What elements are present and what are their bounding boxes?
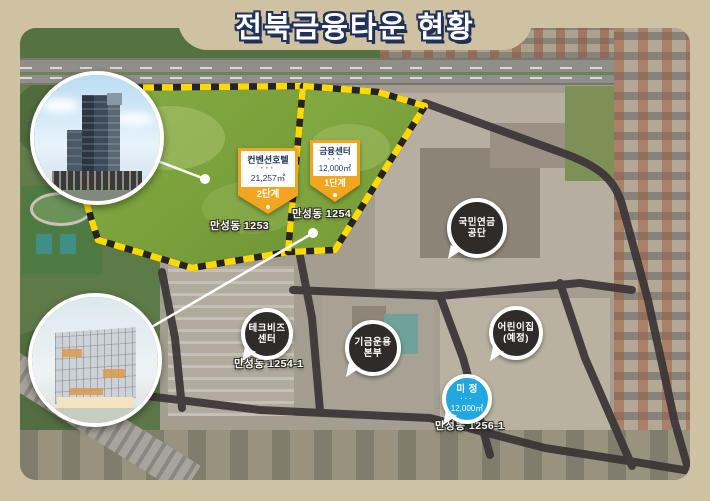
facade-accent bbox=[70, 388, 103, 396]
bubble-area-value: 12,000㎡ bbox=[451, 404, 483, 414]
bubble-line: 본부 bbox=[364, 348, 382, 359]
badge-convention-hotel: 컨벤션호텔 ··· 21,257㎡ 2단계 bbox=[238, 148, 298, 214]
bubble-label: 테크비즈 센터 bbox=[249, 323, 286, 346]
badge-area-value: 12,000㎡ bbox=[310, 163, 360, 174]
hotel-podium bbox=[52, 171, 143, 191]
bubble-fund-hq: 기금운용 본부 bbox=[345, 320, 401, 376]
bubble-undecided: 미 정 ··· 12,000㎡ bbox=[442, 374, 492, 424]
bubble-line: 어린이집 bbox=[498, 322, 535, 333]
badge-area-value: 21,257㎡ bbox=[238, 172, 298, 184]
page-title: 전북금융타운 현황 bbox=[235, 4, 475, 46]
infographic-board: 만성동 1253 만성동 1254 만성동 1254-1 만성동 1256-1 … bbox=[0, 0, 710, 501]
bubble-label: 국민연금 공단 bbox=[459, 217, 496, 240]
badge-phase: 2단계 bbox=[238, 186, 298, 200]
badge-tip-dot bbox=[333, 193, 337, 197]
ground bbox=[34, 190, 160, 201]
bubble-label: 어린이집 (예정) bbox=[498, 322, 535, 345]
lobby-glass bbox=[57, 397, 133, 408]
badge-phase: 1단계 bbox=[310, 176, 360, 189]
ground bbox=[32, 408, 158, 423]
hotel-tower-illustration bbox=[34, 75, 160, 201]
title-banner: 전북금융타운 현황 bbox=[178, 0, 532, 50]
cloud bbox=[42, 98, 80, 113]
dots-divider: ··· bbox=[451, 396, 483, 404]
facade-accent bbox=[103, 369, 126, 378]
bubble-nps: 국민연금 공단 bbox=[447, 198, 507, 258]
bubble-line: 국민연금 bbox=[459, 217, 496, 228]
bubble-label: 기금운용 본부 bbox=[355, 337, 392, 360]
badge-tip-dot bbox=[266, 205, 270, 209]
aerial-map: 만성동 1253 만성동 1254 만성동 1254-1 만성동 1256-1 … bbox=[20, 28, 690, 480]
callout-financial-center-rendering bbox=[28, 293, 162, 427]
financial-center-illustration bbox=[32, 297, 158, 423]
bubble-daycare: 어린이집 (예정) bbox=[489, 306, 543, 360]
badge-financial-center: 금융센터 ··· 12,000㎡ 1단계 bbox=[310, 140, 360, 202]
hotel-tower-top bbox=[107, 93, 122, 106]
bubble-label: 미 정 ··· 12,000㎡ bbox=[451, 384, 483, 413]
lot-label-1254: 만성동 1254 bbox=[292, 206, 351, 221]
bubble-line: 테크비즈 bbox=[249, 323, 286, 334]
bubble-line: 미 정 bbox=[456, 384, 478, 395]
bubble-line: 센터 bbox=[258, 334, 276, 345]
facade-accent bbox=[62, 349, 82, 358]
hotel-tower bbox=[82, 95, 120, 173]
bubble-techbiz: 테크비즈 센터 bbox=[241, 308, 293, 360]
callout-convention-hotel-rendering bbox=[30, 71, 164, 205]
bubble-line: 기금운용 bbox=[355, 337, 392, 348]
bubble-line: 공단 bbox=[468, 228, 486, 239]
bubble-line: (예정) bbox=[503, 333, 529, 344]
lot-label-1253: 만성동 1253 bbox=[210, 218, 269, 233]
